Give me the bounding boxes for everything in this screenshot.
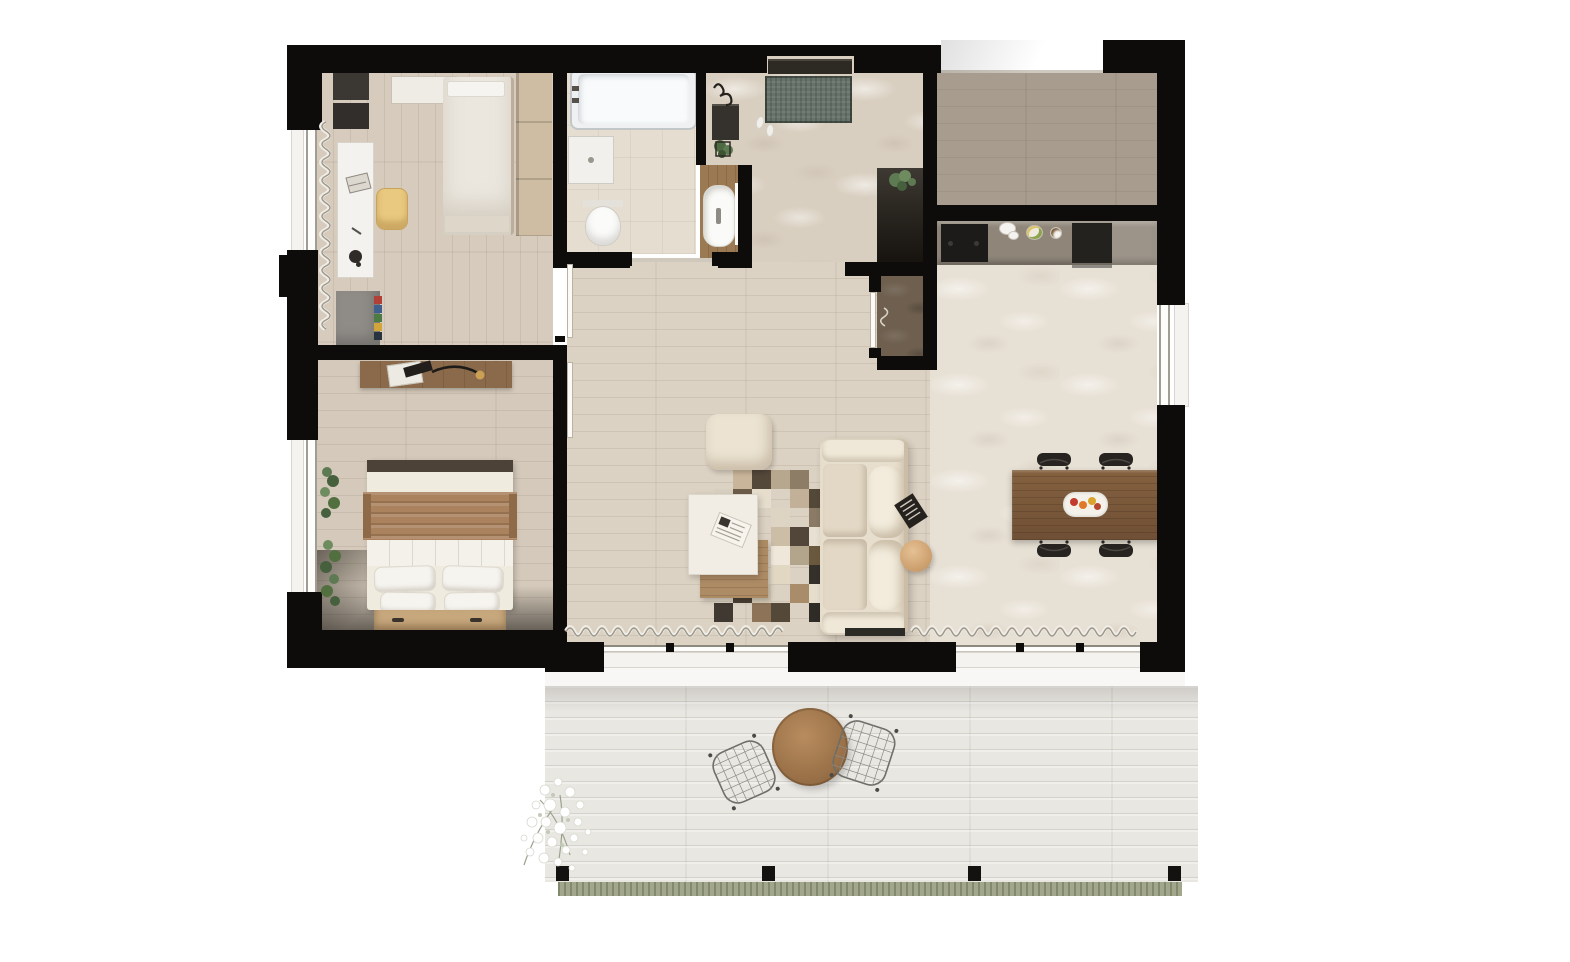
wall-segment bbox=[923, 45, 937, 370]
colored-book bbox=[374, 305, 382, 313]
wall-segment bbox=[767, 45, 854, 56]
bath-faucet bbox=[572, 86, 579, 91]
colored-book bbox=[374, 323, 382, 331]
fence-post bbox=[968, 866, 981, 881]
coffee-table-top bbox=[688, 494, 758, 575]
doormat bbox=[765, 76, 852, 123]
bed-blanket bbox=[367, 540, 513, 566]
wall-segment bbox=[718, 252, 752, 268]
colored-book bbox=[374, 314, 382, 322]
wall-segment bbox=[696, 62, 706, 165]
fruit bbox=[1070, 498, 1078, 506]
fruit bbox=[1094, 503, 1101, 510]
storage-box bbox=[333, 72, 369, 100]
wall-segment bbox=[738, 165, 752, 264]
wall-segment bbox=[937, 205, 1157, 221]
bed-throw-drape bbox=[363, 494, 371, 538]
bed-foot-blanket bbox=[445, 216, 509, 232]
wall-segment bbox=[287, 630, 560, 668]
window-office bbox=[306, 128, 317, 252]
fence-post bbox=[762, 866, 775, 881]
window-dining bbox=[1159, 303, 1170, 407]
cooktop-knob bbox=[974, 241, 979, 246]
tall-cabinet bbox=[877, 168, 923, 262]
dresser-handle bbox=[392, 618, 404, 622]
wall-segment bbox=[287, 345, 567, 360]
cooktop-knob bbox=[948, 241, 953, 246]
exterior-notch-shadow bbox=[941, 40, 1103, 73]
bedroom-door-leaf bbox=[567, 362, 573, 438]
wall-segment bbox=[1157, 66, 1185, 305]
terrace-top-shadow bbox=[545, 686, 1198, 712]
wall-segment bbox=[1140, 642, 1185, 672]
fruit bbox=[1079, 501, 1087, 509]
bath-faucet bbox=[572, 98, 579, 103]
window-sill bbox=[1174, 303, 1189, 407]
dresser-handle bbox=[470, 618, 482, 622]
coffee-cup bbox=[1050, 227, 1062, 239]
floor-back-room bbox=[937, 73, 1157, 205]
floor-plan-canvas bbox=[0, 0, 1570, 962]
oven bbox=[1072, 223, 1112, 263]
closet-door-leaf bbox=[870, 292, 876, 348]
window-sill bbox=[291, 436, 304, 594]
wall-segment bbox=[553, 45, 567, 262]
storage-box bbox=[333, 103, 369, 129]
exterior-sill-band bbox=[952, 652, 1144, 668]
bed-footboard bbox=[367, 460, 513, 472]
wall-segment bbox=[279, 255, 287, 297]
wall-segment bbox=[869, 276, 881, 292]
sofa-back-cushion bbox=[869, 466, 905, 538]
sliding-glass-left bbox=[604, 645, 788, 652]
entry-door bbox=[768, 59, 852, 74]
bed-pillow bbox=[374, 565, 437, 593]
wall-segment bbox=[1157, 405, 1185, 645]
fence-post bbox=[1168, 866, 1181, 881]
bed-pillow bbox=[442, 565, 505, 593]
wall-segment bbox=[545, 642, 604, 672]
wall-segment bbox=[877, 356, 937, 370]
sofa-armrest bbox=[822, 440, 906, 462]
single-bed bbox=[443, 77, 514, 235]
pouf bbox=[706, 414, 772, 470]
wall-segment bbox=[287, 45, 322, 130]
wall-segment bbox=[788, 642, 956, 672]
terrace-round-table bbox=[772, 708, 848, 786]
toilet bbox=[585, 206, 621, 246]
terrace-deck bbox=[545, 686, 1198, 882]
desk-lamp bbox=[349, 250, 362, 263]
fence-post bbox=[556, 866, 569, 881]
basin-faucet bbox=[716, 208, 721, 224]
round-side-table bbox=[900, 540, 932, 572]
grass-edge bbox=[558, 882, 1182, 896]
bed-pillow bbox=[447, 81, 505, 97]
counter-right-light bbox=[1112, 221, 1157, 265]
colored-book bbox=[374, 332, 382, 340]
sofa-seat-cushion bbox=[823, 539, 867, 610]
window-bedroom bbox=[306, 436, 317, 594]
floor-closet bbox=[877, 276, 923, 356]
wall-segment bbox=[845, 262, 937, 276]
media-strip bbox=[845, 628, 905, 636]
office-door-leaf bbox=[567, 264, 573, 338]
desk-chair bbox=[376, 188, 408, 230]
sofa-frame-edge bbox=[904, 442, 908, 632]
wall-segment bbox=[553, 360, 567, 642]
exterior-sill-band bbox=[600, 652, 792, 668]
sofa-back-cushion bbox=[869, 540, 905, 610]
wall-segment bbox=[553, 252, 630, 268]
bed-throw bbox=[363, 492, 517, 540]
shower-drain bbox=[588, 157, 594, 163]
fruit-bowl bbox=[1026, 225, 1043, 240]
hall-console bbox=[712, 104, 739, 140]
window-sill bbox=[291, 128, 304, 252]
colored-book bbox=[374, 296, 382, 304]
bathroom-door-threshold bbox=[632, 258, 716, 262]
bathtub-inner bbox=[578, 74, 689, 124]
floor-dining-rug bbox=[930, 262, 1157, 646]
kitchen-sink bbox=[1008, 231, 1019, 240]
oven-handle bbox=[1072, 265, 1112, 268]
sliding-glass-right bbox=[956, 645, 1140, 652]
bed-throw-drape bbox=[509, 494, 517, 538]
bedroom-wall-shelf bbox=[360, 361, 512, 388]
sofa-seat-cushion bbox=[823, 464, 867, 537]
wall-segment bbox=[869, 348, 881, 358]
office-wardrobe bbox=[516, 66, 552, 236]
